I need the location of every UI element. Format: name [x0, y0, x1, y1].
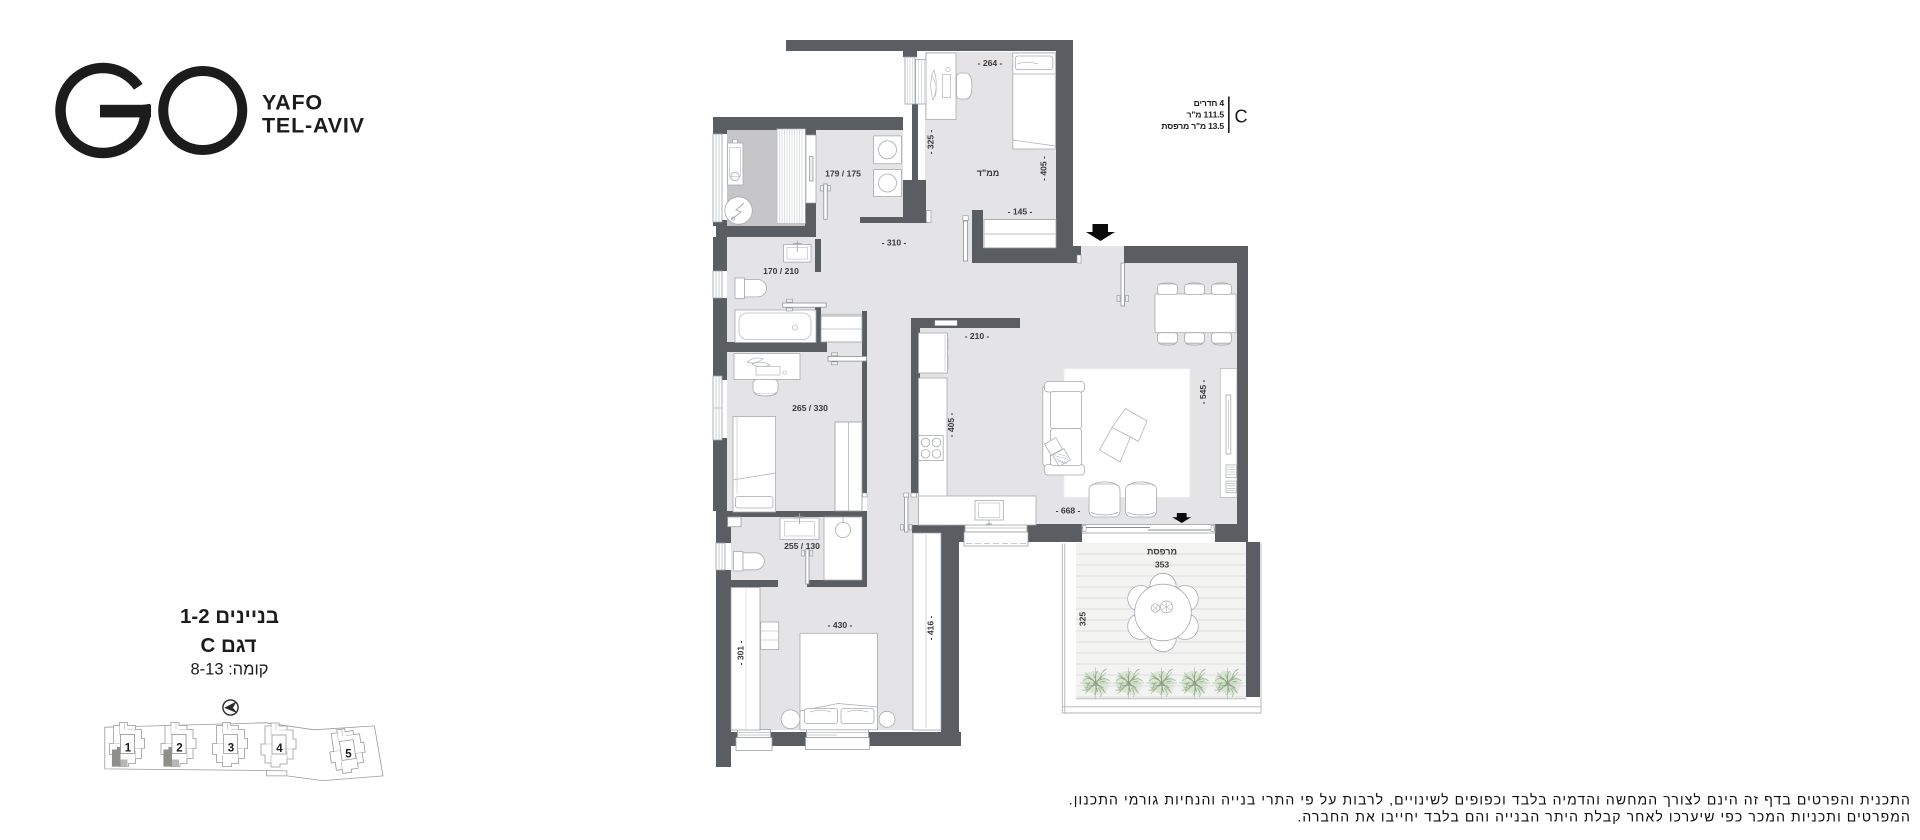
svg-text:1: 1: [125, 743, 132, 755]
svg-text:- 210 -: - 210 -: [965, 331, 990, 341]
svg-text:- 430 -: - 430 -: [828, 620, 853, 630]
svg-text:- 310 -: - 310 -: [882, 238, 907, 248]
svg-text:בניינים 1-2: בניינים 1-2: [180, 605, 279, 628]
svg-text:- 264 -: - 264 -: [978, 58, 1003, 68]
svg-text:- 668 -: - 668 -: [1056, 506, 1081, 516]
svg-text:- 301 -: - 301 -: [736, 640, 746, 665]
svg-text:4: 4: [276, 743, 283, 755]
svg-text:3: 3: [228, 743, 234, 755]
svg-text:170 / 210: 170 / 210: [763, 266, 799, 276]
svg-text:179 / 175: 179 / 175: [825, 169, 861, 179]
svg-text:TEL-AVIV: TEL-AVIV: [262, 114, 365, 138]
svg-text:265 / 330: 265 / 330: [792, 403, 828, 413]
svg-text:353: 353: [1155, 560, 1170, 570]
svg-text:111.5 מ"ר: 111.5 מ"ר: [1187, 110, 1225, 120]
svg-text:- 405 -: - 405 -: [1039, 156, 1049, 181]
svg-text:התכנית והפרטים בדף זה הינם לצו: התכנית והפרטים בדף זה הינם לצורך המחשה ו…: [1069, 792, 1911, 808]
svg-text:קומה: 8-13: קומה: 8-13: [190, 661, 268, 679]
svg-text:13.5 מ"ר מרפסת: 13.5 מ"ר מרפסת: [1161, 121, 1224, 131]
svg-text:C: C: [1235, 106, 1248, 126]
svg-text:YAFO: YAFO: [262, 91, 323, 115]
svg-text:5: 5: [345, 749, 352, 761]
svg-text:- 416 -: - 416 -: [926, 615, 936, 640]
svg-text:ממ"ד: ממ"ד: [977, 168, 1000, 178]
svg-text:מרפסת: מרפסת: [1147, 547, 1177, 557]
svg-text:דגם C: דגם C: [200, 634, 256, 657]
svg-text:255 / 130: 255 / 130: [784, 541, 820, 551]
svg-text:- 145 -: - 145 -: [1008, 207, 1033, 217]
svg-text:המפרטים ותכניות המכר כפי שיערכ: המפרטים ותכניות המכר כפי שיערכו לאחר קבל…: [1297, 809, 1911, 825]
svg-text:- 405 -: - 405 -: [946, 412, 956, 437]
svg-text:- 325 -: - 325 -: [926, 129, 936, 154]
svg-text:- 545 -: - 545 -: [1198, 379, 1208, 404]
svg-text:4 חדרים: 4 חדרים: [1194, 98, 1225, 108]
svg-text:2: 2: [176, 743, 182, 755]
svg-text:325: 325: [1078, 612, 1088, 627]
